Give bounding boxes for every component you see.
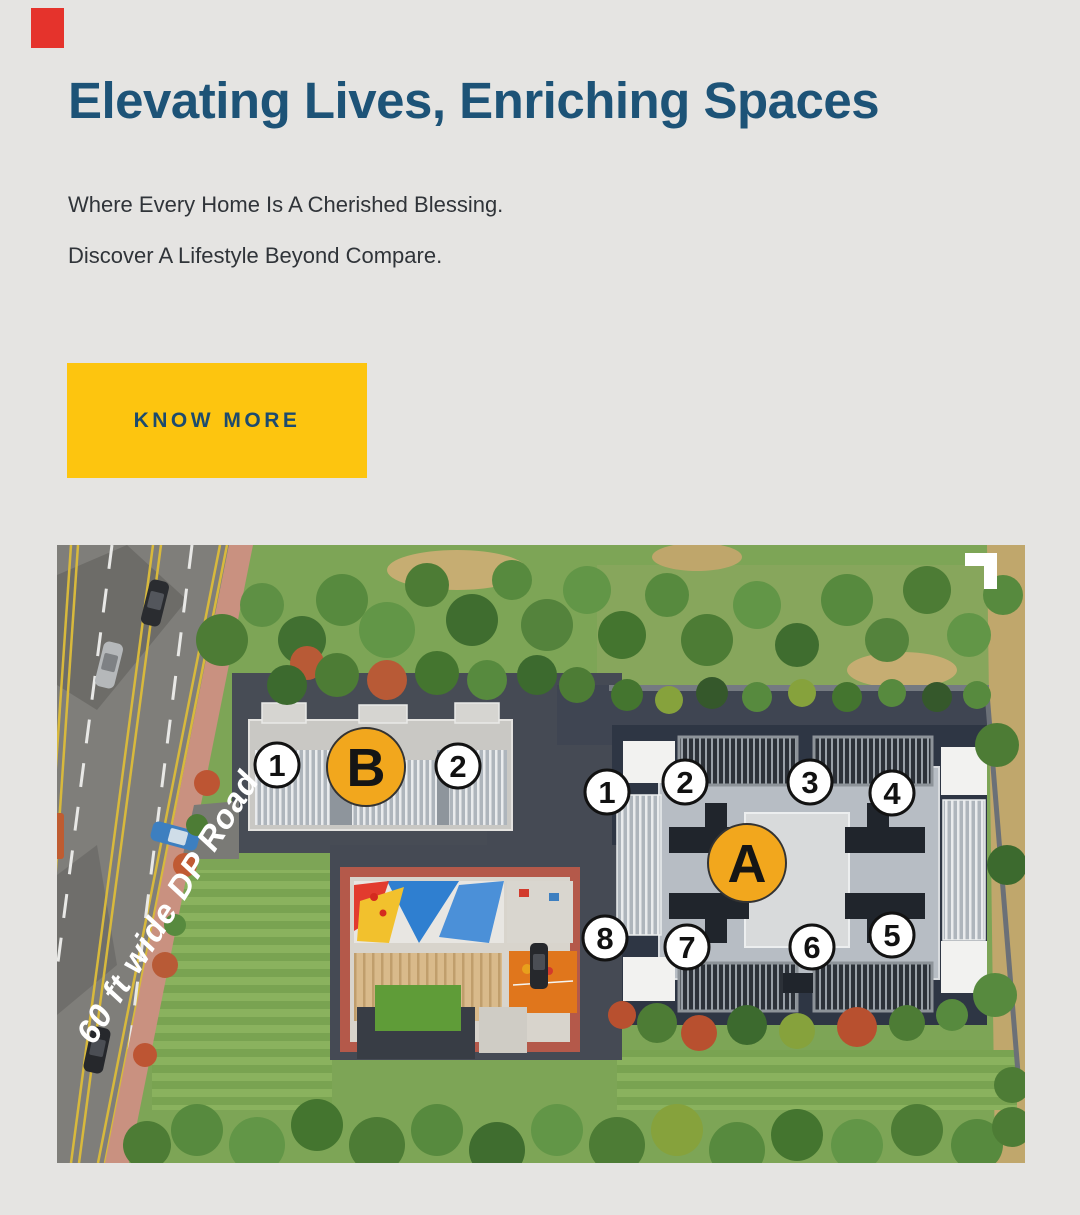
svg-text:5: 5 <box>883 918 900 953</box>
amenity-area <box>340 867 580 1059</box>
marker-b1[interactable]: 1 <box>255 743 299 787</box>
marker-building-b[interactable]: B <box>327 728 405 806</box>
marker-a1[interactable]: 1 <box>585 770 629 814</box>
marker-a3[interactable]: 3 <box>788 760 832 804</box>
svg-text:2: 2 <box>449 749 466 784</box>
truck-orange <box>57 813 64 859</box>
marker-a4[interactable]: 4 <box>870 771 914 815</box>
svg-text:A: A <box>728 834 767 894</box>
marker-a7[interactable]: 7 <box>665 925 709 969</box>
svg-text:2: 2 <box>676 765 693 800</box>
marker-a5[interactable]: 5 <box>870 913 914 957</box>
page-title: Elevating Lives, Enriching Spaces <box>68 60 879 142</box>
marker-a2[interactable]: 2 <box>663 760 707 804</box>
svg-text:1: 1 <box>598 775 615 810</box>
know-more-button[interactable]: KNOW MORE <box>67 363 367 478</box>
red-accent-bar <box>31 8 64 48</box>
marker-building-a[interactable]: A <box>708 824 786 902</box>
site-plan-aerial-image[interactable]: 60 ft wide DP Road 1 B 2 1 2 3 4 <box>57 545 1025 1163</box>
svg-text:7: 7 <box>678 930 695 965</box>
svg-text:6: 6 <box>803 930 820 965</box>
subtitle-line-2: Discover A Lifestyle Beyond Compare. <box>68 243 442 269</box>
svg-text:3: 3 <box>801 765 818 800</box>
svg-text:8: 8 <box>596 921 613 956</box>
svg-text:4: 4 <box>883 776 901 811</box>
marker-a8[interactable]: 8 <box>583 916 627 960</box>
svg-text:1: 1 <box>268 748 285 783</box>
svg-text:B: B <box>347 738 386 798</box>
parked-car <box>530 943 548 989</box>
marker-a6[interactable]: 6 <box>790 925 834 969</box>
marker-b2[interactable]: 2 <box>436 744 480 788</box>
subtitle-line-1: Where Every Home Is A Cherished Blessing… <box>68 192 503 218</box>
